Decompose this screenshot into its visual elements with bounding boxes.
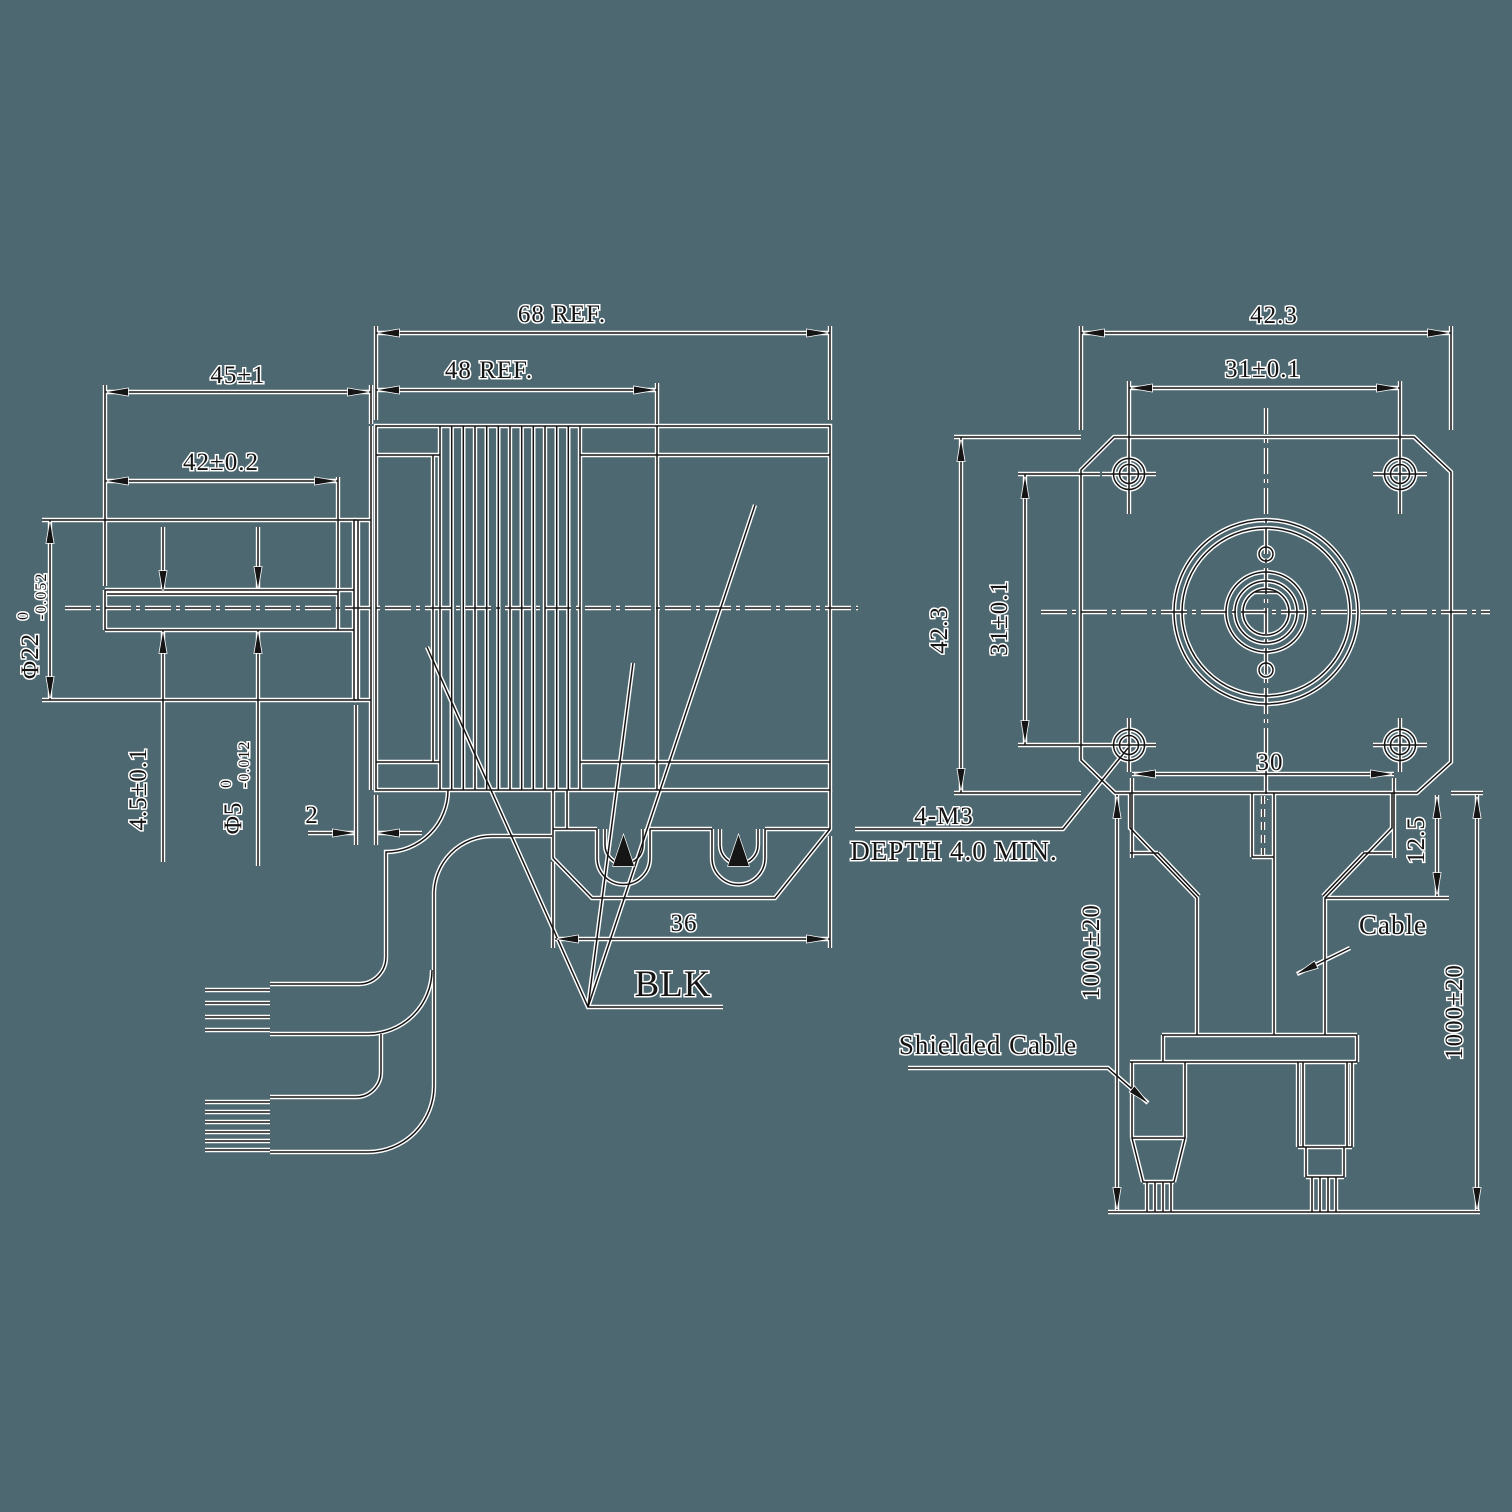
engineering-drawing-canvas: 68 REF. 48 REF. 45±1 42±0.2 Φ22 0 -0.052… [0, 0, 1512, 1512]
dim-shaft-flat-length: 42±0.2 [183, 449, 259, 476]
dim-overall-length: 68 REF. [518, 301, 606, 328]
dim-flat-height: 4.5±0.1 [125, 747, 152, 830]
dim-hole-spacing-vertical: 31±0.1 [986, 580, 1013, 656]
dim-motor-length: 48 REF. [445, 357, 533, 384]
dim-pilot-depth: 2 [305, 802, 319, 829]
dim-pilot-diameter-value: Φ22 [17, 633, 44, 679]
dim-cable-length-left: 1000±20 [1078, 904, 1105, 1000]
dim-shaft-tol-lower: -0.012 [236, 741, 253, 788]
dim-shaft-tol-upper: 0 [218, 779, 235, 788]
dim-pilot-tol-lower: -0.052 [33, 573, 50, 620]
dim-connector-width: 36 [671, 910, 698, 937]
thread-callout-line1: 4-M3 [914, 803, 974, 830]
shielded-cable-label: Shielded Cable [899, 1030, 1077, 1060]
dim-shaft-extension: 45±1 [210, 362, 265, 389]
dim-shaft-diameter-value: Φ5 [220, 802, 247, 835]
dim-rear-width: 30 [1257, 749, 1284, 776]
dim-cable-length-right: 1000±20 [1441, 964, 1468, 1060]
motor-dimension-drawing: 68 REF. 48 REF. 45±1 42±0.2 Φ22 0 -0.052… [0, 0, 1512, 1512]
dim-frame-width: 42.3 [1250, 302, 1298, 329]
dim-frame-height: 42.3 [926, 606, 953, 654]
color-callout-blk: BLK [635, 964, 712, 1005]
dim-hole-spacing-horizontal: 31±0.1 [1225, 356, 1301, 383]
thread-callout-line2: DEPTH 4.0 MIN. [850, 836, 1058, 866]
dim-pilot-tol-upper: 0 [15, 611, 32, 620]
drawing-background [0, 0, 1512, 1512]
dim-rear-step-depth: 12.5 [1403, 816, 1430, 864]
cable-label: Cable [1359, 910, 1427, 940]
